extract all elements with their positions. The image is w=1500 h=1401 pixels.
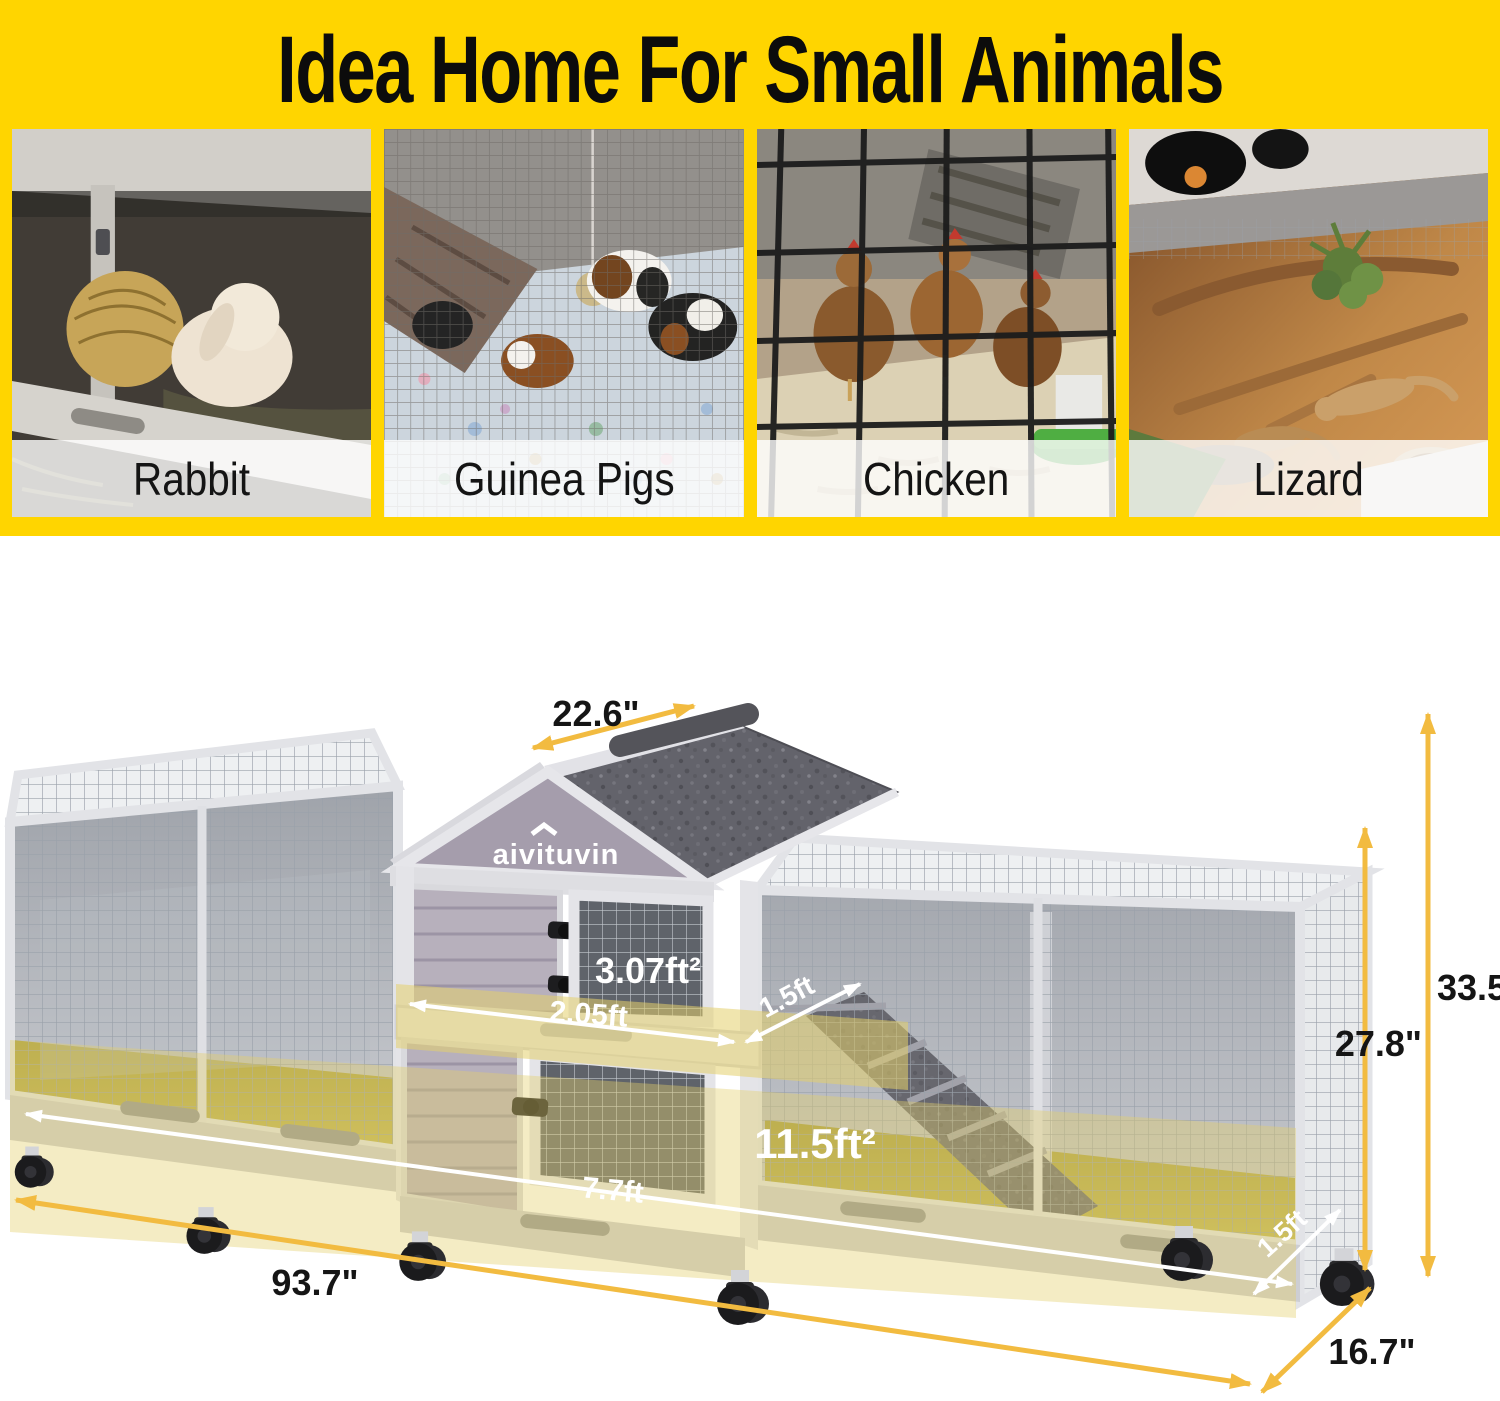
photo-label-guinea-pigs: Guinea Pigs (384, 440, 743, 517)
photo-label-rabbit: Rabbit (12, 440, 371, 517)
top-banner: Idea Home For Small Animals (0, 0, 1500, 536)
animal-photo-strip: Rabbit (12, 129, 1488, 517)
photo-label-lizard: Lizard (1129, 440, 1488, 517)
hutch-dimension-diagram: aivituvin 2.0 (0, 536, 1500, 1401)
run-floor-length-label: 7.7ft (581, 1171, 645, 1209)
photo-card-chicken: Chicken (757, 129, 1116, 517)
photo-card-rabbit: Rabbit (12, 129, 371, 517)
overall-height-label: 33.5" (1437, 967, 1500, 1008)
hutch-floor-length-label: 2.05ft (548, 995, 628, 1033)
frame-height-label: 27.8" (1335, 1023, 1422, 1064)
overall-length-label: 93.7" (271, 1262, 358, 1303)
run-floor-area-label: 11.5ft² (754, 1120, 875, 1167)
banner-title: Idea Home For Small Animals (0, 14, 1500, 126)
photo-card-guinea-pigs: Guinea Pigs (384, 129, 743, 517)
roof-depth-label: 22.6" (552, 693, 639, 734)
hutch-diagram-svg: aivituvin 2.0 (0, 536, 1500, 1401)
photo-card-lizard: Lizard (1129, 129, 1488, 517)
banner-title-text: Idea Home For Small Animals (277, 16, 1223, 125)
photo-label-chicken: Chicken (757, 440, 1116, 517)
overall-depth-label: 16.7" (1328, 1331, 1415, 1372)
brand-logo-text: aivituvin (493, 839, 620, 871)
hutch-floor-area-label: 3.07ft² (595, 950, 701, 991)
